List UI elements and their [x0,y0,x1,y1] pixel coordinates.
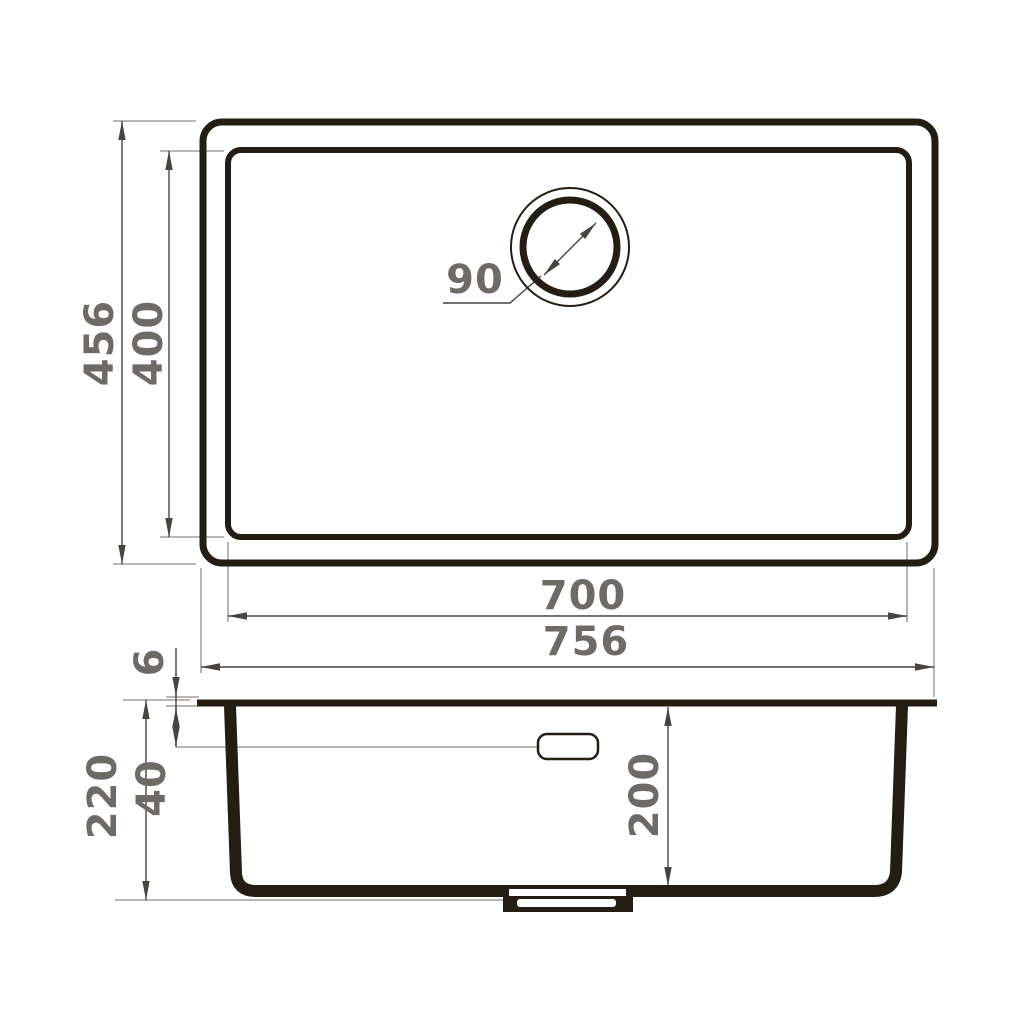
drain-cut [509,889,626,897]
drain-outer-circle [511,188,629,306]
drain-flange-groove [517,899,616,907]
dim-label-outer-depth: 456 [80,300,120,387]
dimension-lines [122,121,934,900]
dim-label-inner-width: 700 [540,576,627,616]
drawing-canvas: 756 700 456 400 90 220 6 40 200 [0,0,1024,1024]
dim-label-overflow-offset: 40 [132,759,172,817]
dim-label-inner-depth: 400 [129,300,169,387]
dim-label-rim-thickness: 6 [130,648,170,677]
drain-inner-circle [523,200,617,294]
dim-label-bowl-depth: 200 [625,752,665,839]
sink-dimension-drawing [0,0,1024,1024]
overflow-opening [538,734,598,759]
dim-label-overall-height: 220 [83,753,123,840]
dim-label-drain-diameter: 90 [446,260,504,300]
side-view-profile [197,703,937,912]
top-view-outline [203,122,935,563]
dim-label-outer-width: 756 [543,622,630,662]
sink-bowl-edge [228,150,909,537]
